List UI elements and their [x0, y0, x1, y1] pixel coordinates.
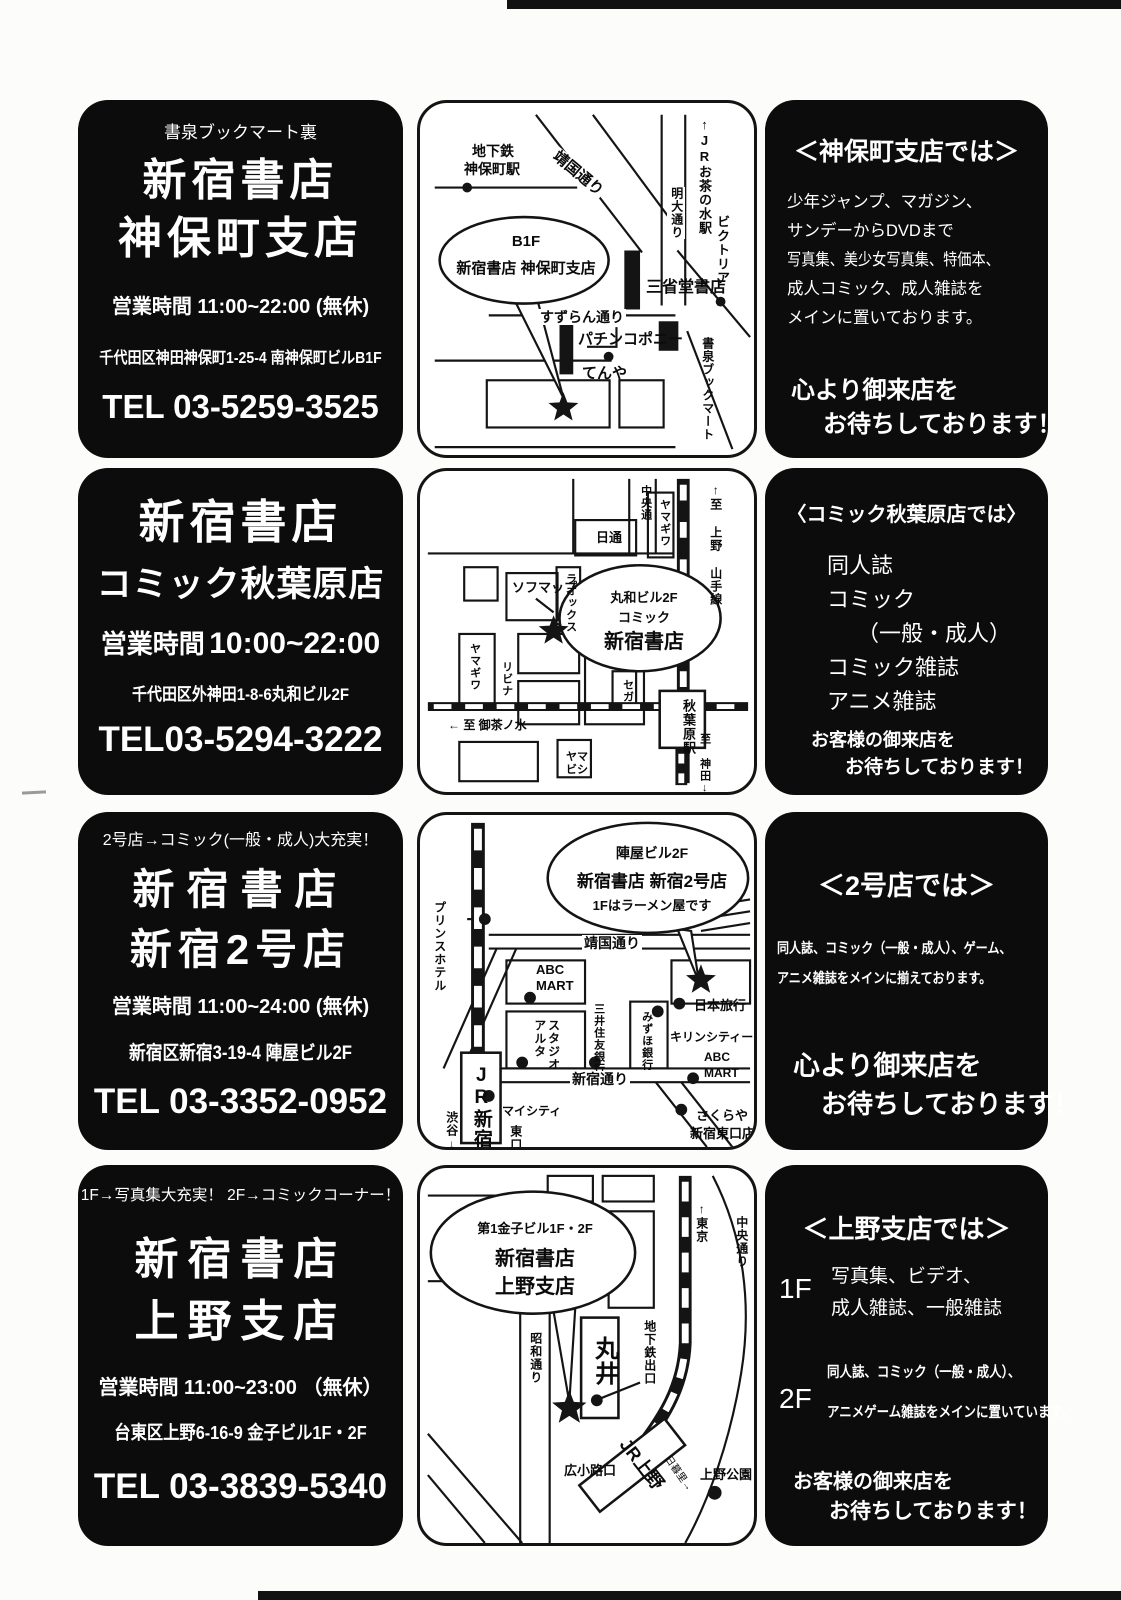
store-note: 書泉ブックマート裏	[78, 118, 403, 143]
map-jimbocho: 地下鉄 神保町駅 靖国通り ↑JRお茶の水駅 明大通り ビクトリア 三省堂書店 …	[417, 100, 757, 458]
store-hours: 営業時間 10:00~22:00	[78, 624, 403, 661]
map-label-jr-shinjuku: JR新宿	[470, 1065, 492, 1149]
map-label-marui: 丸井	[590, 1336, 618, 1386]
map-label-showa-dori: 昭和通り	[526, 1332, 544, 1384]
map-label-yamabishi: ヤマビシ	[566, 751, 592, 776]
hours-value: 11:00~24:00	[197, 996, 310, 1018]
store-address: 千代田区外神田1-8-6丸和ビル2F	[98, 680, 384, 705]
promo-item: アニメ雑誌	[827, 684, 937, 716]
map-label-mitsui-sumitomo-bank: 三井住友銀行	[592, 1003, 605, 1075]
store-info-shinjuku2: 2号店→コミック(一般・成人)大充実！ 新宿書店 新宿2号店 営業時間 11:0…	[78, 812, 403, 1150]
map-label-sakuraya-line2: 新宿東口店	[690, 1127, 755, 1142]
map-label-yamagiwa-left: ヤマギワ	[468, 643, 481, 691]
promo-shinjuku2: ＜2号店では＞ 同人誌、コミック（一般・成人）、ゲーム、 アニメ雑誌をメインに揃…	[765, 812, 1048, 1150]
map-label-subway-line1: 地下鉄	[472, 143, 514, 159]
map-label-subway-exit: 地下鉄出口	[642, 1320, 656, 1385]
map-label-livina: リビナ	[500, 661, 513, 697]
store-tel: TEL 03-5259-3525	[78, 388, 403, 426]
promo-closing-1: 心より御来店を	[793, 1044, 981, 1083]
hours-label: 営業時間	[112, 996, 192, 1018]
star-marker	[548, 392, 578, 420]
promo-line: 成人コミック、成人雑誌を	[787, 275, 984, 299]
balloon-text-store: 新宿書店 新宿2号店	[552, 867, 752, 892]
store-name-line1: 新宿書店	[78, 856, 403, 917]
hours-label: 営業時間	[112, 296, 192, 318]
store-address: 千代田区神田神保町1-25-4 南神保町ビルB1F	[98, 344, 384, 368]
map-label-subway-line2: 神保町駅	[464, 161, 520, 177]
balloon-text-branch: 上野支店	[435, 1270, 635, 1299]
store-tel: TEL03-5294-3222	[78, 720, 403, 760]
map-label-mizuho-bank: みずほ銀行	[640, 1011, 653, 1071]
ad-page: 書泉ブックマート裏 新宿書店 神保町支店 営業時間 11:00~22:00 (無…	[0, 0, 1121, 1600]
promo-closing-2: お待ちしております！	[829, 1495, 1038, 1525]
store-name-line1: 新宿書店	[78, 1223, 403, 1287]
promo-closing-2: お待ちしております！	[823, 404, 1062, 439]
map-label-higashi-guchi: 東口	[508, 1125, 522, 1150]
top-edge-bar	[507, 0, 1121, 9]
store-name-line1: 新宿書店	[78, 486, 403, 552]
map-label-sanseido: 三省堂書店	[646, 279, 726, 297]
hours-label: 営業時間	[98, 1377, 178, 1399]
map-label-tenya: てんや	[582, 365, 627, 382]
promo-item: コミック雑誌	[827, 650, 959, 682]
map-label-prince-hotel: プリンスホテル	[432, 901, 446, 992]
promo-title: 〈コミック秋葉原店では〉	[765, 498, 1048, 527]
map-label-nihon-ryoko: 日本旅行	[694, 999, 746, 1014]
promo-line: メインに置いております。	[787, 304, 982, 328]
promo-akihabara: 〈コミック秋葉原店では〉 同人誌 コミック （一般・成人） コミック雑誌 アニメ…	[765, 468, 1048, 795]
map-label-to-tokyo: ↑東京	[694, 1202, 708, 1243]
map-label-to-ueno: ↑至 上野	[708, 483, 722, 552]
map-label-kirin-city: キリンシティー	[670, 1031, 753, 1045]
floor1-label: 1F	[779, 1273, 812, 1305]
floor2-label: 2F	[779, 1383, 812, 1415]
map-label-victoria: ビクトリア	[714, 215, 729, 285]
floor1-line2: 成人雑誌、一般雑誌	[831, 1293, 1002, 1320]
floor2-line1: 同人誌、コミック（一般・成人）、	[827, 1361, 1020, 1382]
promo-item: （一般・成人）	[857, 616, 1011, 648]
map-label-nittsu: 日通	[596, 531, 622, 546]
store-hours: 営業時間 11:00~23:00 （無休）	[78, 1371, 403, 1400]
store-name-line2: 新宿2号店	[78, 916, 403, 977]
hours-note: (無休)	[316, 296, 369, 318]
hours-value: 11:00~22:00	[197, 296, 310, 318]
map-label-to-kanda: 至 神田↓	[698, 733, 711, 795]
map-label-shinjuku-dori: 新宿通り	[570, 1071, 630, 1087]
promo-item: コミック	[827, 582, 915, 614]
promo-line: 少年ジャンプ、マガジン、	[787, 188, 982, 212]
balloon-text-store: 新宿書店	[564, 625, 724, 654]
store-info-jimbocho: 書泉ブックマート裏 新宿書店 神保町支店 営業時間 11:00~22:00 (無…	[78, 100, 403, 458]
alta-col: アルタ	[533, 1019, 547, 1058]
railways	[636, 1176, 685, 1454]
promo-closing-1: お客様の御来店を	[811, 726, 955, 752]
map-label-hirokoji-guchi: 広小路口	[564, 1464, 616, 1479]
map-ueno: ↑東京 中央通り 昭和通り 丸井 地下鉄出口 広小路口 JR上野 日暮里→ 上野…	[417, 1165, 757, 1546]
star-marker	[686, 964, 716, 992]
hours-value: 10:00~22:00	[209, 627, 380, 660]
promo-closing-2: お待ちしております！	[821, 1084, 1079, 1121]
map-label-suzuran-dori: すずらん通り	[538, 309, 626, 325]
balloon-text-ramen-note: 1Fはラーメン屋です	[552, 895, 752, 914]
store-info-ueno: 1F→写真集大充実！ 2F→コミックコーナー！ 新宿書店 上野支店 営業時間 1…	[78, 1165, 403, 1546]
balloon-text-floor: B1F	[441, 233, 611, 250]
store-tel: TEL 03-3352-0952	[78, 1082, 403, 1122]
balloon-text-store: 新宿書店	[435, 1242, 635, 1271]
map-label-sakuraya-line1: さくらや	[696, 1109, 748, 1124]
balloon-tail	[677, 929, 699, 982]
store-address: 新宿区新宿3-19-4 陣屋ビル2F	[98, 1038, 384, 1065]
map-label-abcmart1-line2: MART	[536, 979, 574, 994]
balloon-text-store: 新宿書店 神保町支店	[436, 257, 616, 278]
store-name-line2: 上野支店	[78, 1285, 403, 1349]
hours-note: (無休)	[316, 996, 369, 1018]
hours-label: 営業時間	[101, 629, 205, 659]
promo-item: 同人誌	[827, 548, 893, 580]
store-name-line1: 新宿書店	[78, 144, 403, 208]
map-label-to-ochanomizu: ← 至 御茶ノ水	[448, 719, 527, 733]
map-label-abcmart2-line2: MART	[704, 1067, 739, 1081]
map-label-shosen-bookmart: 書泉ブックマート	[700, 337, 714, 441]
map-label-chuo-dori: 中央通	[639, 485, 652, 521]
studio-col: スタジオ	[547, 1019, 561, 1071]
promo-title: ＜上野支店では＞	[765, 1209, 1048, 1246]
store-note: 1F→写真集大充実！ 2F→コミックコーナー！	[78, 1183, 403, 1205]
balloon-tail	[554, 1309, 576, 1403]
map-label-yamagiwa-right: ヤマギワ	[658, 499, 671, 547]
promo-jimbocho: ＜神保町支店では＞ 少年ジャンプ、マガジン、 サンデーからDVDまで 写真集、美…	[765, 100, 1048, 458]
promo-title: ＜2号店では＞	[765, 864, 1048, 903]
promo-title: ＜神保町支店では＞	[765, 132, 1048, 168]
promo-closing-1: お客様の御来店を	[793, 1465, 953, 1494]
store-name-line2: 神保町支店	[78, 202, 403, 266]
map-label-chuo-dori: 中央通り	[734, 1216, 748, 1268]
map-label-pachinko-pony: パチンコポニー	[578, 331, 683, 348]
promo-line: サンデーからDVDまで	[787, 217, 954, 241]
map-label-mycity: マイシティ	[502, 1105, 561, 1119]
balloon-text-building: 第1金子ビル1F・2F	[435, 1218, 635, 1237]
map-label-jr-ochanomizu: ↑JRお茶の水駅	[696, 117, 711, 235]
floor1-line1: 写真集、ビデオ、	[831, 1261, 982, 1288]
map-label-ueno-park: 上野公園	[700, 1468, 752, 1483]
map-label-studio-alta: スタジオアルタ	[532, 1019, 560, 1071]
map-label-yasukuni-dori: 靖国通り	[582, 935, 642, 951]
promo-line: 同人誌、コミック（一般・成人）、ゲーム、	[777, 938, 1011, 958]
promo-line: 写真集、美少女写真集、特価本、	[787, 246, 1000, 270]
promo-line: アニメ雑誌をメインに揃えております。	[777, 968, 991, 988]
balloon-text-comic: コミック	[564, 607, 724, 626]
map-shinjuku2: プリンスホテル 靖国通り ABC MART 三井住友銀行 スタジオアルタ みずほ…	[417, 812, 757, 1150]
store-tel: TEL 03-3839-5340	[78, 1467, 403, 1507]
map-label-sega: セガ	[621, 679, 634, 703]
map-label-abcmart2-line1: ABC	[704, 1051, 730, 1065]
store-address: 台東区上野6-16-9 金子ビル1F・2F	[98, 1419, 384, 1445]
promo-closing-2: お待ちしております！	[845, 752, 1034, 779]
balloon-text-building: 丸和ビル2F	[564, 587, 724, 606]
store-hours: 営業時間 11:00~24:00 (無休)	[78, 990, 403, 1019]
map-label-shibuya: 渋谷↓	[444, 1111, 458, 1150]
map-label-abcmart1-line1: ABC	[536, 963, 564, 978]
hours-note: （無休）	[303, 1377, 383, 1399]
map-label-akihabara-station: 秋葉原駅	[680, 699, 695, 755]
floor2-line2: アニメゲーム雑誌をメインに置いています。	[827, 1401, 1074, 1422]
promo-ueno: ＜上野支店では＞ 1F 写真集、ビデオ、 成人雑誌、一般雑誌 2F 同人誌、コミ…	[765, 1165, 1048, 1546]
store-name-line2: コミック秋葉原店	[78, 556, 403, 607]
map-label-meidai-dori: 明大通り	[667, 187, 685, 239]
bottom-edge-bar	[258, 1591, 1121, 1600]
store-hours: 営業時間 11:00~22:00 (無休)	[78, 290, 403, 319]
store-info-akihabara: 新宿書店 コミック秋葉原店 営業時間 10:00~22:00 千代田区外神田1-…	[78, 468, 403, 795]
left-edge-mark	[22, 790, 46, 794]
balloon-text-building: 陣屋ビル2F	[552, 843, 752, 863]
hours-value: 11:00~23:00	[184, 1377, 297, 1399]
store-note: 2号店→コミック(一般・成人)大充実！	[78, 826, 403, 850]
promo-closing-1: 心より御来店を	[791, 370, 959, 405]
map-akihabara: 中央通 ヤマギワ ↑至 上野 山手線 日通 ソフマップ ラオックス ヤマギワ リ…	[417, 468, 757, 795]
